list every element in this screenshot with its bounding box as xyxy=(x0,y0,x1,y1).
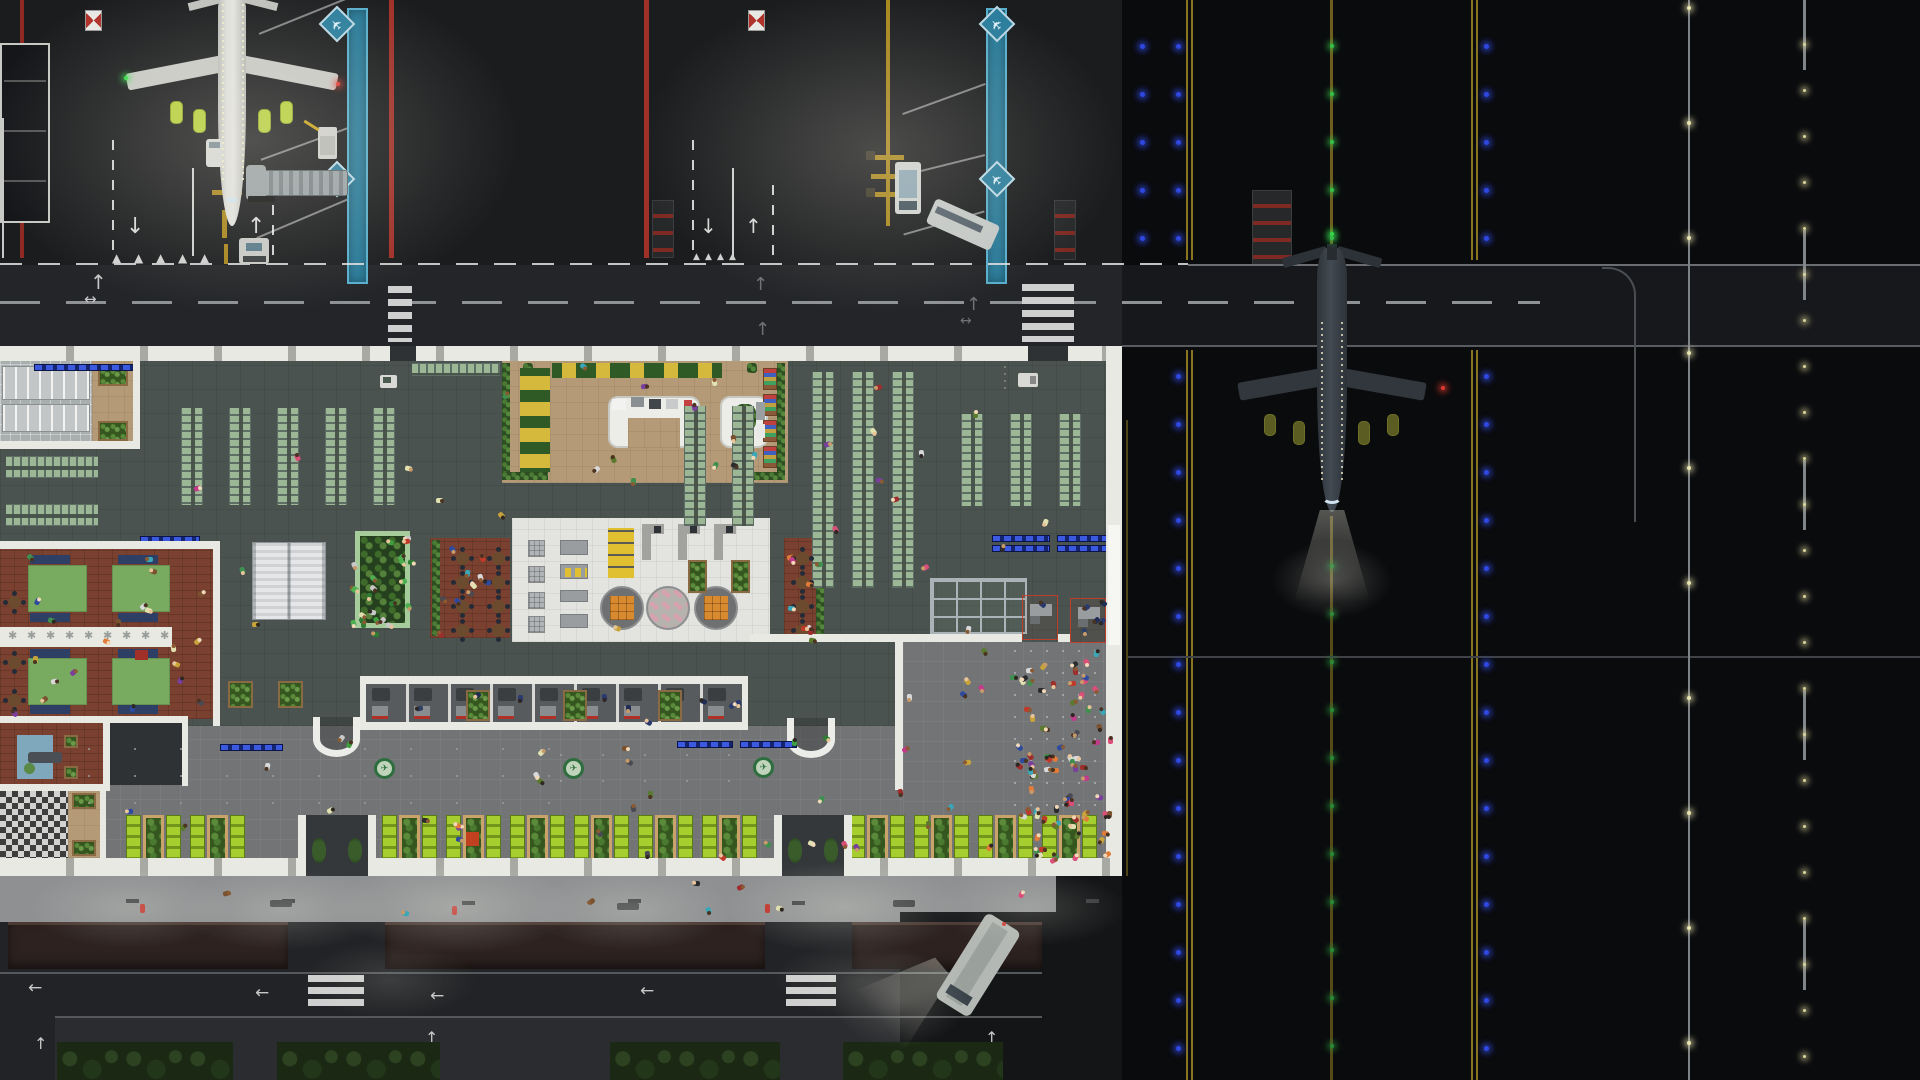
entrance-bench[interactable] xyxy=(382,815,397,862)
foodcourt-hedge xyxy=(777,363,785,472)
seating-row[interactable] xyxy=(961,414,983,506)
play-mat xyxy=(112,658,170,705)
taxiway-centerline xyxy=(1330,0,1333,248)
entrance-bench[interactable] xyxy=(678,815,693,862)
display-stand[interactable] xyxy=(560,540,588,555)
person[interactable] xyxy=(1073,765,1079,773)
pushback-front xyxy=(243,256,266,262)
terminal-right-door[interactable] xyxy=(1108,525,1120,645)
taxiway-light xyxy=(1176,188,1181,193)
lounge-sofa[interactable] xyxy=(28,752,62,763)
person[interactable] xyxy=(422,817,430,823)
island-sink xyxy=(756,424,765,438)
terminal-entrance-north[interactable] xyxy=(1028,346,1068,361)
ticket-kiosk-screen xyxy=(383,377,391,383)
dropoff-canopy xyxy=(8,922,288,969)
sidewalk-bench[interactable] xyxy=(270,900,292,907)
person[interactable] xyxy=(222,890,230,897)
taxiway-light xyxy=(1687,811,1691,815)
kiosk-queue-dots xyxy=(1004,380,1006,382)
security-lane-divider xyxy=(490,684,493,722)
taxiway-light xyxy=(1803,733,1806,736)
floor-logo-decal: ✈ xyxy=(753,757,774,778)
person[interactable] xyxy=(1068,799,1073,806)
seating-row[interactable] xyxy=(373,408,395,505)
seating-row[interactable] xyxy=(229,408,251,505)
security-scanner[interactable] xyxy=(708,688,726,701)
fridge xyxy=(612,399,626,410)
shop-shelf[interactable] xyxy=(763,394,777,416)
road-edge-south-east xyxy=(1122,345,1920,347)
seating-row[interactable] xyxy=(181,408,203,505)
entrance-bench[interactable] xyxy=(510,815,525,862)
shop-shelf[interactable] xyxy=(763,368,777,390)
taxiway-light xyxy=(1803,1055,1806,1058)
seating-row[interactable] xyxy=(892,372,914,588)
hall-guide-dots xyxy=(180,802,182,804)
taxiway-light xyxy=(1484,236,1489,241)
play-bench[interactable] xyxy=(30,555,70,564)
security-lane-divider xyxy=(448,684,451,722)
selfservice-kiosk[interactable] xyxy=(528,540,545,557)
entrance-bench[interactable] xyxy=(1018,815,1033,862)
booth-seating-column[interactable] xyxy=(520,368,550,472)
storage-room xyxy=(110,723,182,785)
taxiway-edge-yellow xyxy=(1191,350,1193,1080)
taxiway-light xyxy=(1687,466,1691,470)
jetbridge-corridor[interactable] xyxy=(347,8,368,284)
security-lane-divider xyxy=(406,684,409,722)
taxiway-light xyxy=(1484,518,1489,523)
queue-guide-dots xyxy=(1078,782,1080,784)
dining-table[interactable] xyxy=(796,552,809,565)
taxiway-light xyxy=(1330,188,1334,192)
security-lane-divider xyxy=(616,684,619,722)
taxiway-light xyxy=(1484,758,1489,763)
taxiway-light xyxy=(1484,422,1489,427)
taxiway-light xyxy=(1803,319,1806,322)
shop-shelf[interactable] xyxy=(763,420,777,442)
person[interactable] xyxy=(801,626,808,631)
dining-table[interactable] xyxy=(492,600,505,613)
taxiway-light xyxy=(1330,612,1334,616)
person[interactable] xyxy=(875,477,883,484)
security-desk-stripe xyxy=(540,716,556,719)
escalator[interactable] xyxy=(252,542,326,620)
person[interactable] xyxy=(146,557,153,562)
booth-seating-row[interactable] xyxy=(552,363,722,378)
taxiway-light xyxy=(1176,902,1181,907)
entrance-bench[interactable] xyxy=(574,815,589,862)
entrance-shrub xyxy=(312,838,326,863)
stock-crates xyxy=(608,528,634,578)
person[interactable] xyxy=(792,739,797,746)
queue-guide-dots xyxy=(1014,716,1016,718)
junction-arrow: ↔ xyxy=(84,292,97,307)
engine-nacelle xyxy=(1358,421,1370,445)
taxiway-light xyxy=(1330,1044,1334,1048)
queue-guide-dots xyxy=(1030,694,1032,696)
security-desk-stripe xyxy=(624,716,640,719)
ground-equipment[interactable] xyxy=(1252,190,1292,266)
hall-guide-dots xyxy=(134,802,136,804)
person[interactable] xyxy=(644,851,650,859)
person[interactable] xyxy=(965,625,971,633)
wall-ornament: ✱ xyxy=(8,630,17,641)
sidewalk-bench[interactable] xyxy=(617,903,639,910)
taxiway-light xyxy=(1176,470,1181,475)
entrance-bench[interactable] xyxy=(190,815,205,862)
person[interactable] xyxy=(1069,823,1076,829)
taxiway-light xyxy=(1484,614,1489,619)
yield-triangles: ▲ xyxy=(693,253,700,262)
person[interactable] xyxy=(1101,830,1109,837)
seating-row[interactable] xyxy=(412,363,500,376)
taxiway-light xyxy=(1687,236,1691,240)
play-bench[interactable] xyxy=(118,613,158,622)
taxiway-light xyxy=(1803,825,1806,828)
aircraft-windows xyxy=(222,4,224,184)
security-scanner[interactable] xyxy=(414,688,432,701)
taxiway-light xyxy=(1803,503,1806,506)
security-frame xyxy=(742,676,748,730)
person[interactable] xyxy=(906,694,911,701)
hall-guide-dots xyxy=(456,802,458,804)
person[interactable] xyxy=(1025,667,1033,673)
taxiway-light xyxy=(1484,92,1489,97)
entrance-bench[interactable] xyxy=(166,815,181,862)
yield-triangles: ▲ xyxy=(112,252,121,264)
jetbridge-arm[interactable] xyxy=(252,170,348,196)
lane-arrow-up: ↑ xyxy=(745,216,762,236)
dining-table[interactable] xyxy=(492,576,505,589)
person[interactable] xyxy=(626,704,631,711)
hall-guide-dots xyxy=(364,802,366,804)
square-planter xyxy=(278,681,303,708)
security-planter xyxy=(658,690,682,721)
taxiway-light xyxy=(1803,273,1806,276)
entrance-bench[interactable] xyxy=(954,815,969,862)
taxiway-light xyxy=(1484,854,1489,859)
playground-wall xyxy=(213,541,220,726)
bench-planter xyxy=(399,815,420,862)
entrance-jamb xyxy=(298,815,306,876)
security-scanner[interactable] xyxy=(498,688,516,701)
entrance-bench[interactable] xyxy=(742,815,757,862)
person[interactable] xyxy=(1052,768,1059,773)
service-road-east xyxy=(1122,265,1920,347)
taxiway-light xyxy=(1330,852,1334,856)
pushback-window xyxy=(246,243,262,251)
person[interactable] xyxy=(730,435,736,443)
play-bench[interactable] xyxy=(30,705,70,714)
restroom-wall xyxy=(0,441,140,449)
person[interactable] xyxy=(1069,681,1076,686)
person[interactable] xyxy=(252,622,259,628)
dining-table[interactable] xyxy=(8,694,21,707)
person[interactable] xyxy=(518,695,523,702)
shop-shelf[interactable] xyxy=(763,446,777,468)
queue-guide-dots xyxy=(1046,694,1048,696)
entrance-bench[interactable] xyxy=(890,815,905,862)
entrance-bench[interactable] xyxy=(978,815,993,862)
person[interactable] xyxy=(809,637,817,643)
person[interactable] xyxy=(1020,758,1027,763)
lane-arrow-down: ↓ xyxy=(700,216,717,236)
person[interactable] xyxy=(129,704,135,712)
corridor-planter xyxy=(72,793,96,809)
yield-triangles: ▲ xyxy=(156,252,165,264)
display-stand[interactable] xyxy=(560,614,588,628)
terminal-entrance-north[interactable] xyxy=(390,346,416,361)
stand-red-line xyxy=(644,0,649,258)
interior-wall xyxy=(103,722,110,786)
taxilane-boundary xyxy=(1128,656,1920,658)
lane-line xyxy=(732,168,734,256)
taxiway-light xyxy=(1484,470,1489,475)
taxiway-light xyxy=(1140,44,1145,49)
depot-shelf xyxy=(4,180,46,182)
security-scanner[interactable] xyxy=(372,688,390,701)
zebra-crossing xyxy=(1022,284,1074,342)
interior-wall xyxy=(0,716,188,723)
seating-row[interactable] xyxy=(1010,414,1032,506)
selfservice-kiosk[interactable] xyxy=(528,566,545,583)
dining-table[interactable] xyxy=(796,600,809,613)
entrance-vestibule xyxy=(298,815,376,876)
entrance-bench[interactable] xyxy=(702,815,717,862)
restroom-stalls xyxy=(2,404,90,432)
fire-hydrant xyxy=(140,904,145,913)
person[interactable] xyxy=(963,759,971,765)
game-viewport[interactable]: ✈✈✈✈✈✈✈↓↑↓↑↑↔↑↔↑↑←←←←↑↑↑▲▲▲▲▲▲▲▲▲✱✱✱✱✱✱✱… xyxy=(0,0,1920,1080)
cockpit-windshield xyxy=(224,190,240,202)
security-scanner[interactable] xyxy=(624,688,642,701)
lane-line xyxy=(192,168,194,256)
fuel-pit-box xyxy=(866,151,875,160)
person[interactable] xyxy=(1027,768,1033,776)
seating-row[interactable] xyxy=(1059,414,1081,506)
apron-edge-yellow xyxy=(1126,420,1128,876)
closed-stand-sign xyxy=(85,10,102,31)
taxiway-light xyxy=(1176,236,1181,241)
taxiway-light xyxy=(1803,1009,1806,1012)
fire-hydrant xyxy=(452,906,457,915)
road-arrow-left: ← xyxy=(28,980,42,997)
person[interactable] xyxy=(693,881,700,887)
seating-row[interactable] xyxy=(6,504,98,526)
taxiway-light xyxy=(1484,710,1489,715)
entrance-bench[interactable] xyxy=(850,815,865,862)
selfservice-kiosk[interactable] xyxy=(528,616,545,633)
street-lamp xyxy=(126,899,139,903)
person[interactable] xyxy=(403,538,411,544)
aircraft-reg-label xyxy=(248,196,275,202)
taxiway-light xyxy=(1687,581,1691,585)
taxiway-light xyxy=(1330,804,1334,808)
service-van-window xyxy=(209,142,220,148)
person[interactable] xyxy=(33,656,38,663)
lane-line xyxy=(772,185,774,256)
dining-table[interactable] xyxy=(456,552,469,565)
dining-table[interactable] xyxy=(456,624,469,637)
street-lamp xyxy=(462,901,475,905)
queue-guide-dots xyxy=(1094,804,1096,806)
taxiway-light xyxy=(1687,1041,1691,1045)
person[interactable] xyxy=(788,606,796,612)
wall-ornament: ✱ xyxy=(27,630,36,641)
person[interactable] xyxy=(973,411,978,418)
street-lamp xyxy=(792,901,805,905)
floor-logo-decal: ✈ xyxy=(374,758,395,779)
person[interactable] xyxy=(1050,681,1056,689)
person[interactable] xyxy=(1010,675,1017,680)
person[interactable] xyxy=(622,746,629,751)
highlighted-seat xyxy=(466,832,479,846)
engine-nacelle xyxy=(170,101,183,124)
security-desk-stripe xyxy=(414,716,430,719)
lounge-planter xyxy=(64,735,78,748)
queue-guide-dots xyxy=(1094,694,1096,696)
service-road xyxy=(0,265,1122,347)
seating-row[interactable] xyxy=(684,406,706,526)
entrance-bench[interactable] xyxy=(486,815,501,862)
queue-guide-dots xyxy=(1062,782,1064,784)
taxiway-light xyxy=(1176,710,1181,715)
hall-guide-dots xyxy=(728,754,730,756)
seating-row[interactable] xyxy=(852,372,874,588)
selfservice-kiosk[interactable] xyxy=(528,592,545,609)
security-scanner[interactable] xyxy=(540,688,558,701)
display-stand[interactable] xyxy=(560,564,588,579)
runway-edge-line xyxy=(1688,0,1690,1080)
person[interactable] xyxy=(1108,737,1113,744)
seating-row[interactable] xyxy=(325,408,347,505)
taxiway-light xyxy=(1803,871,1806,874)
dining-table[interactable] xyxy=(492,624,505,637)
taxiway-light xyxy=(1687,6,1691,10)
taxiway-edge-yellow xyxy=(1476,350,1478,1080)
yield-triangles: ▲ xyxy=(717,253,724,262)
dining-table[interactable] xyxy=(8,596,21,609)
oven xyxy=(631,397,644,407)
road-arrow: ↑ xyxy=(753,276,768,294)
queue-guide-dots xyxy=(1014,804,1016,806)
entrance-shrub xyxy=(348,838,362,863)
entrance-bench[interactable] xyxy=(126,815,141,862)
person[interactable] xyxy=(919,450,925,457)
play-bench[interactable] xyxy=(118,705,158,714)
entrance-bench[interactable] xyxy=(1082,815,1097,862)
taxiway-light xyxy=(1803,135,1806,138)
interior-wall xyxy=(100,791,106,858)
aircraft-windows xyxy=(1341,322,1343,480)
person[interactable] xyxy=(1038,687,1045,692)
security-frame xyxy=(360,676,748,684)
seating-row[interactable] xyxy=(812,372,834,588)
entrance-bench[interactable] xyxy=(550,815,565,862)
seating-row[interactable] xyxy=(6,456,98,478)
taxiway-light xyxy=(1330,236,1334,240)
yield-triangles: ▲ xyxy=(729,253,736,262)
hall-guide-dots xyxy=(410,802,412,804)
person[interactable] xyxy=(171,645,177,653)
person[interactable] xyxy=(367,593,372,600)
queue-guide-dots xyxy=(1046,716,1048,718)
parking-arrow: ↑ xyxy=(34,1036,47,1052)
person[interactable] xyxy=(805,581,813,588)
hall-guide-dots xyxy=(410,748,412,750)
queue-guide-dots xyxy=(1094,782,1096,784)
person[interactable] xyxy=(1028,786,1034,794)
person[interactable] xyxy=(1039,847,1046,852)
lane-arrow-up: ↑ xyxy=(247,216,265,238)
taxiway-light xyxy=(1176,854,1181,859)
taxiway-light xyxy=(1330,756,1334,760)
vehicle-depot[interactable] xyxy=(0,43,50,223)
display-stand[interactable] xyxy=(560,590,588,602)
engine-nacelle xyxy=(193,109,206,133)
taxiway-light xyxy=(1484,662,1489,667)
wayfinding-sign xyxy=(677,741,733,748)
person[interactable] xyxy=(436,498,443,503)
taxiway-light xyxy=(1176,1046,1181,1051)
queue-guide-dots xyxy=(1062,694,1064,696)
person[interactable] xyxy=(1054,806,1059,813)
taxiway-light xyxy=(1176,422,1181,427)
restroom2-floor xyxy=(0,791,68,858)
dining-table[interactable] xyxy=(8,656,21,669)
yield-triangles: ▲ xyxy=(705,253,712,262)
bench-planter xyxy=(995,815,1016,862)
person[interactable] xyxy=(631,478,636,485)
taxiway-light xyxy=(1484,950,1489,955)
person[interactable] xyxy=(1080,765,1087,770)
boarding-wall xyxy=(895,642,903,790)
taxiway-light xyxy=(1330,564,1334,568)
person[interactable] xyxy=(369,609,377,615)
person[interactable] xyxy=(601,693,607,701)
info-desk[interactable] xyxy=(313,717,360,757)
ground-equipment[interactable] xyxy=(1054,200,1076,260)
entrance-bench[interactable] xyxy=(614,815,629,862)
taxiway-light xyxy=(1484,902,1489,907)
fire-hydrant xyxy=(765,904,770,913)
dining-table[interactable] xyxy=(492,552,505,565)
taxiway-light xyxy=(1803,457,1806,460)
junction-arrow: ↔ xyxy=(960,314,972,328)
yield-triangles: ▲ xyxy=(178,252,187,264)
taxiway-light xyxy=(1176,950,1181,955)
person[interactable] xyxy=(1107,810,1113,817)
taxiway-light xyxy=(1330,140,1334,144)
taxiway-light xyxy=(1803,227,1806,230)
person[interactable] xyxy=(897,788,904,796)
ground-equipment[interactable] xyxy=(652,200,674,258)
taxiway-light xyxy=(1484,140,1489,145)
person[interactable] xyxy=(926,821,931,828)
security-desk-stripe xyxy=(498,716,514,719)
sidewalk-bench[interactable] xyxy=(893,900,915,907)
catering-box xyxy=(320,136,335,155)
hall-guide-dots xyxy=(410,775,412,777)
kiosk-queue-dots xyxy=(1004,387,1006,389)
taxiway-corner-line xyxy=(1602,267,1636,522)
entrance-bench[interactable] xyxy=(230,815,245,862)
hall-guide-dots xyxy=(502,802,504,804)
bench-planter xyxy=(591,815,612,862)
lane-line xyxy=(112,140,114,256)
